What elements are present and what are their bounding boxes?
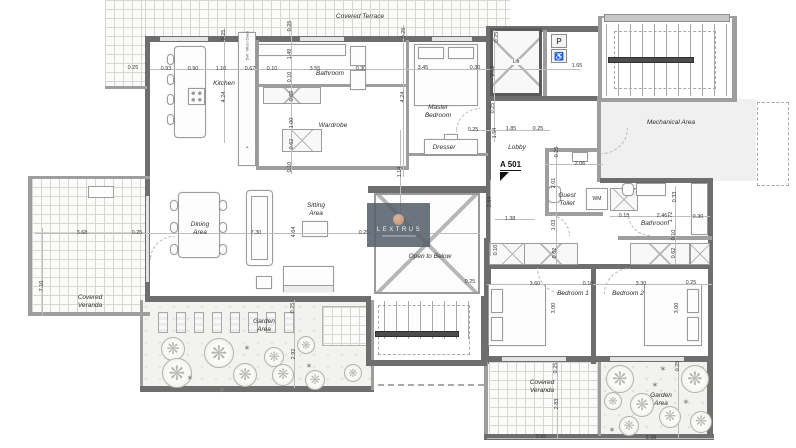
shrub-icon: ✶ [660, 365, 667, 374]
wardrobe-closet [282, 129, 322, 152]
tree-icon: ❋ [204, 338, 234, 368]
dimension-label: 1.49 [287, 49, 293, 60]
lift-label: Lift [512, 59, 521, 65]
dimension-label: 0.93 [161, 66, 172, 72]
dimension-label: 0.25 [287, 21, 293, 32]
wall [598, 362, 601, 436]
pillow [687, 317, 699, 341]
wall [481, 296, 487, 366]
room-label: Covered Veranda [520, 379, 564, 395]
room-label: Lobby [497, 144, 537, 152]
dimension-line [487, 284, 712, 285]
stair-handrail [608, 57, 694, 63]
window [146, 196, 149, 282]
dimension-label: 2.32 [490, 66, 496, 77]
roof-edge-dashed [757, 102, 789, 186]
parking-sign: P [551, 34, 567, 48]
dimension-label: 1.10 [216, 66, 227, 72]
section-marker: A 501 [500, 160, 521, 181]
wall [545, 148, 549, 216]
tree-icon: ❋ [606, 365, 634, 393]
tree-icon: ❋ [619, 416, 639, 436]
door-arc [150, 236, 174, 260]
shrub-icon: ✶ [219, 386, 226, 395]
wall [708, 178, 713, 364]
tree-icon: ❋ [690, 411, 712, 433]
room-label: Master Bedroom [416, 104, 460, 120]
dimension-label: 0.25 [490, 103, 496, 114]
roof-dash-line [378, 384, 484, 386]
dimension-label: 0.25 [494, 32, 500, 43]
dimension-label: 2.84 [487, 197, 493, 208]
dimension-label: 0.30 [470, 65, 481, 71]
dimension-label: 3.45 [418, 65, 429, 71]
dimension-label: 0.10 [287, 162, 293, 173]
room-label: Bathroom [300, 70, 360, 78]
stove [188, 88, 205, 105]
sun-lounger [158, 312, 168, 333]
room-label: Sitting Area [300, 202, 332, 218]
bath-vanity [636, 183, 666, 196]
tree-icon: ❋ [604, 392, 622, 410]
room-label: Dresser [419, 144, 469, 152]
stair-guide-lower [378, 305, 470, 355]
stool [167, 54, 174, 65]
dimension-label: 0.90 [188, 66, 199, 72]
dimension-label: 0.10 [583, 281, 594, 287]
dimension-label: 1.03 [551, 220, 557, 231]
hall-closet [524, 243, 578, 265]
wall [256, 166, 408, 170]
tree-icon: ❋ [297, 336, 315, 354]
fridge-label: F [245, 146, 250, 148]
dimension-label: 3.00 [674, 303, 680, 314]
wall [28, 176, 150, 179]
stair-top-wall [604, 14, 730, 22]
dimension-label: 0.62 [289, 139, 295, 150]
sun-lounger [284, 312, 294, 333]
sun-lounger [176, 312, 186, 333]
shrub-icon: ✶ [652, 381, 659, 390]
dimension-label: 0.25 [465, 279, 476, 285]
dimension-label: 3.00 [551, 303, 557, 314]
wall [368, 186, 486, 193]
bath-fixture [350, 46, 366, 66]
covered-veranda-bottom [489, 362, 599, 435]
dimension-label: 0.62 [552, 248, 558, 259]
dimension-label: 0.25 [675, 361, 681, 372]
washing-machine-label: WM [593, 196, 602, 202]
wall [140, 300, 143, 390]
watermark-brand: LEXTRUS [377, 227, 422, 233]
dimension-label: 1.00 [289, 118, 295, 129]
tree-icon: ❋ [659, 406, 681, 428]
micro-oven-label: Micro Oven [245, 31, 250, 51]
side-table [302, 221, 328, 237]
dimension-label: 2.06 [575, 161, 586, 167]
wall [366, 296, 371, 366]
dimension-label: 0.10 [267, 66, 278, 72]
shrub-icon: ✶ [306, 362, 313, 371]
wall [598, 16, 602, 102]
room-label: Bathroom [625, 220, 685, 228]
room-label: Dining Area [184, 221, 216, 237]
shrub-icon: ✶ [187, 374, 194, 383]
dimension-label: 3.56 [536, 434, 547, 440]
shrub-icon: ✶ [609, 426, 616, 435]
stool [167, 74, 174, 85]
sun-lounger [230, 312, 240, 333]
room-label: Open to Below [390, 253, 470, 261]
bathtub [691, 183, 708, 235]
wall [366, 360, 487, 366]
toilet-fixture [622, 183, 634, 196]
dresser-handle [444, 134, 458, 140]
dimension-line [490, 180, 491, 256]
dimension-line [42, 228, 43, 316]
dimension-label: 1.85 [506, 126, 517, 132]
wall [406, 40, 409, 170]
planter-grid [322, 306, 372, 346]
dimension-label: 3.30 [636, 281, 647, 287]
wall [105, 86, 147, 89]
section-marker-label: A 501 [500, 160, 521, 171]
coffee-table [256, 276, 272, 289]
wall [732, 16, 737, 102]
dishwasher-label: DW [245, 54, 250, 61]
terrace-top-left [105, 0, 145, 88]
stair-handrail-lower [375, 331, 459, 337]
wall [148, 296, 370, 302]
shrub-icon: ✶ [244, 344, 251, 353]
section-marker-arrow-icon [500, 172, 509, 181]
sun-lounger [194, 312, 204, 333]
room-label: Garden Area [246, 318, 282, 334]
wall [543, 30, 547, 100]
dimension-label: 0.25 [132, 230, 143, 236]
room-label: Bedroom 2 [598, 290, 658, 298]
sofa-back [284, 285, 333, 292]
dimension-label: 0.25 [686, 280, 697, 286]
stool [167, 114, 174, 125]
room-label: Mechanical Area [645, 119, 697, 127]
wall [598, 98, 737, 102]
room-label: Covered Terrace [328, 13, 392, 21]
window [300, 37, 344, 41]
window [432, 37, 472, 41]
chair [219, 200, 227, 211]
room-label: Guest Toilet [552, 192, 582, 208]
dimension-label: 0.25 [553, 363, 559, 374]
wall [597, 96, 601, 182]
dimension-label: 0.25 [221, 30, 227, 41]
dimension-label: 4.24 [221, 92, 227, 103]
window [502, 357, 566, 361]
room-label: Garden Area [643, 392, 679, 408]
dimension-line [494, 30, 495, 142]
dimension-label: 3.38 [646, 435, 657, 441]
hall-closet [690, 243, 710, 265]
dimension-label: 0.15 [619, 213, 630, 219]
dimension-line [487, 438, 714, 439]
veranda-bench [88, 186, 114, 198]
dimension-label: 0.10 [493, 245, 499, 256]
wall [28, 312, 150, 316]
wheelchair-glyph: ♿ [554, 52, 564, 61]
dimension-label: 2.92 [291, 349, 297, 360]
pillow [491, 317, 503, 341]
dimension-label: 3.60 [530, 281, 541, 287]
hall-closet [630, 243, 690, 265]
watermark: LEXTRUS [367, 203, 430, 247]
tree-icon: ❋ [344, 364, 362, 382]
floor-plan: Lift P ♿ Micro Oven DW F [0, 0, 796, 448]
dimension-label: 3.68 [77, 230, 88, 236]
dimension-label: 7.30 [251, 230, 262, 236]
tree-icon: ❋ [233, 363, 257, 387]
wall [591, 264, 596, 364]
wall [145, 36, 150, 178]
window [610, 357, 684, 361]
dimension-label: 0.62 [671, 248, 677, 259]
chair [170, 200, 178, 211]
room-label: Bedroom 1 [543, 290, 603, 298]
dimension-label: 1.38 [505, 216, 516, 222]
dimension-label: 0.10 [287, 72, 293, 83]
dimension-label: 0.67 [245, 66, 256, 72]
dimension-label: 2.83 [554, 399, 560, 410]
watermark-subtitle-line [382, 235, 416, 237]
window [160, 37, 208, 41]
dimension-label: 0.26 [554, 147, 560, 158]
dimension-label: 2.46 [657, 213, 668, 219]
dimension-label: 1.65 [572, 63, 583, 69]
dimension-label: 0.33 [672, 192, 678, 203]
tree-icon: ❋ [272, 364, 294, 386]
pillow [448, 47, 474, 59]
room-label: Wardrobe [303, 122, 363, 130]
dimension-label: 0.25 [290, 303, 296, 314]
dimension-label: 0.10 [671, 230, 677, 241]
pillow [687, 289, 699, 313]
tv-unit-inner [251, 196, 268, 260]
watermark-logo-icon [393, 214, 404, 225]
sun-lounger [212, 312, 222, 333]
dimension-label: 0.30 [693, 214, 704, 220]
dimension-label: 0.62 [289, 91, 295, 102]
room-label: Kitchen [199, 80, 249, 88]
wall [486, 96, 600, 101]
dimension-label: 1.54 [492, 128, 498, 139]
chair [170, 222, 178, 233]
wall [618, 236, 712, 240]
dimension-label: 0.25 [401, 28, 407, 39]
wall [28, 176, 32, 316]
shrub-icon: ✶ [683, 398, 690, 407]
dimension-label: 1.14 [397, 167, 403, 178]
wall [484, 362, 488, 440]
dimension-label: 7.10 [39, 281, 45, 292]
dimension-label: 4.24 [400, 92, 406, 103]
wall [256, 40, 259, 170]
stool [167, 94, 174, 105]
dimension-label: 4.64 [291, 227, 297, 238]
dimension-label: 2.01 [551, 178, 557, 189]
counter [258, 44, 346, 56]
parking-sign-label: P [556, 37, 561, 46]
dimension-label: 0.25 [468, 127, 479, 133]
tree-icon: ❋ [681, 365, 709, 393]
pillow [418, 47, 444, 59]
tree-icon: ❋ [305, 370, 325, 390]
wheelchair-icon: ♿ [551, 49, 567, 63]
room-label: Covered Veranda [68, 294, 112, 310]
pillow [491, 289, 503, 313]
chair [219, 244, 227, 255]
dimension-label: 0.25 [128, 65, 139, 71]
chair [219, 222, 227, 233]
dimension-label: 0.25 [533, 126, 544, 132]
